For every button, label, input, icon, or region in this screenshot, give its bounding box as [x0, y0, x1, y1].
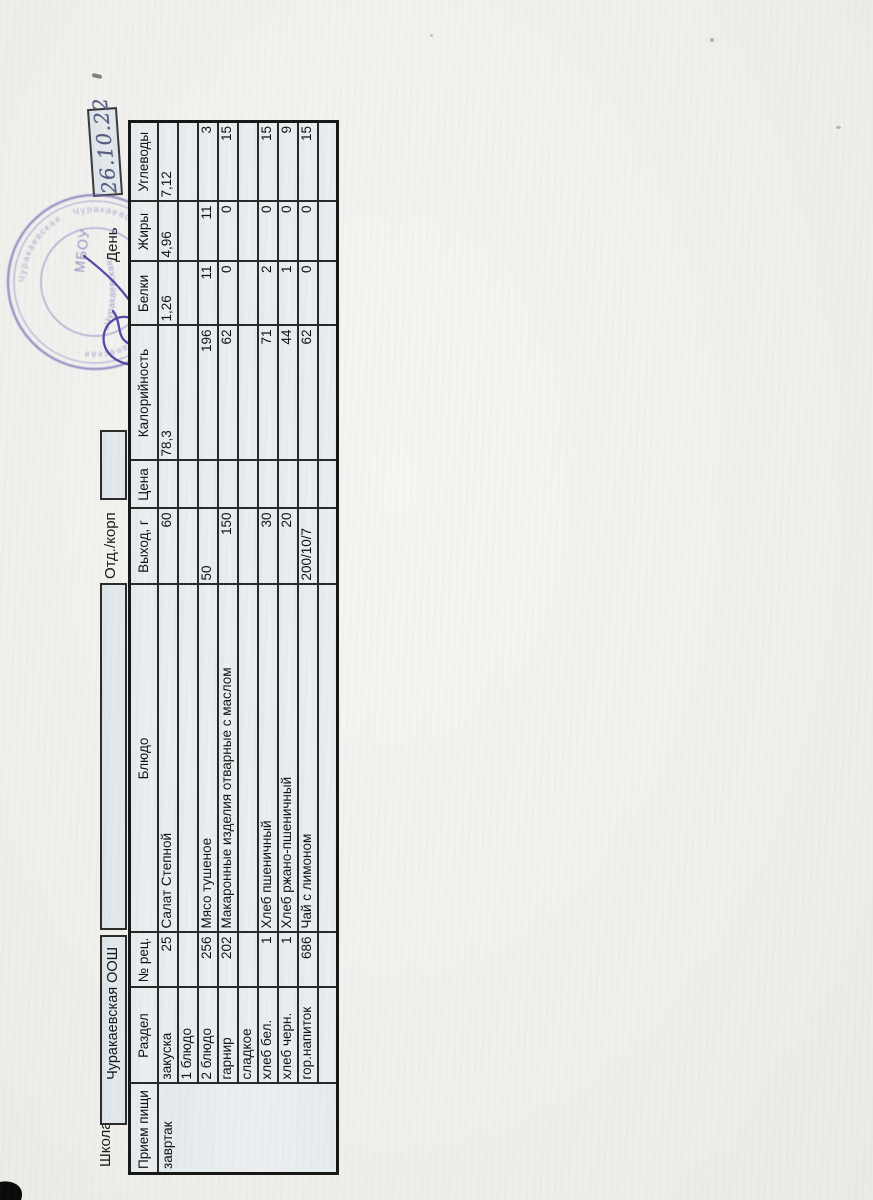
column-header: Белки — [130, 262, 158, 326]
table-cell: 1 блюдо — [178, 988, 198, 1084]
table-cell — [178, 326, 198, 461]
scanned-menu-document: Школа Чуракаевская ООШ Отд./корп День 26… — [0, 0, 873, 1200]
table-cell: 0 — [218, 262, 238, 326]
table-row: хлеб бел.1Хлеб пшеничный30712015 — [258, 122, 278, 1174]
table-cell: 71 — [258, 326, 278, 461]
table-row — [318, 122, 338, 1174]
column-header: Калорийность — [130, 326, 158, 461]
table-cell — [238, 122, 258, 202]
table-cell: 15 — [258, 122, 278, 202]
table-cell: 7,12 — [158, 122, 178, 202]
table-row: гарнир202Макаронные изделия отварные с м… — [218, 122, 238, 1174]
table-cell: 0 — [258, 202, 278, 262]
table-cell: Мясо тушеное — [198, 585, 218, 933]
table-cell: 11 — [198, 202, 218, 262]
table-cell: Макаронные изделия отварные с маслом — [218, 585, 238, 933]
table-cell: 200/10/7 — [298, 509, 318, 585]
table-row: завртакзакуска25Салат Степной6078,31,264… — [158, 122, 178, 1174]
table-cell: 15 — [298, 122, 318, 202]
table-cell: 2 блюдо — [198, 988, 218, 1084]
column-header: Цена — [130, 461, 158, 509]
table-cell: 1,26 — [158, 262, 178, 326]
scan-artifact — [836, 126, 841, 129]
table-cell — [238, 262, 258, 326]
table-row: хлеб черн.1Хлеб ржано-пшеничный2044109 — [278, 122, 298, 1174]
table-cell: гор.напиток — [298, 988, 318, 1084]
table-row: сладкое — [238, 122, 258, 1174]
table-cell — [158, 461, 178, 509]
table-cell: 78,3 — [158, 326, 178, 461]
table-cell: 9 — [278, 122, 298, 202]
table-cell: 60 — [158, 509, 178, 585]
table-cell: 0 — [298, 202, 318, 262]
table-cell — [238, 509, 258, 585]
scan-artifact — [710, 38, 714, 42]
column-header: № рец. — [130, 933, 158, 988]
table-cell: 0 — [278, 202, 298, 262]
date-box: 26.10.22 — [87, 107, 123, 197]
table-cell: 150 — [218, 509, 238, 585]
table-cell: Хлеб ржано-пшеничный — [278, 585, 298, 933]
table-cell — [178, 585, 198, 933]
document-sheet: Школа Чуракаевская ООШ Отд./корп День 26… — [0, 0, 873, 1200]
table-cell: 62 — [218, 326, 238, 461]
table-cell: закуска — [158, 988, 178, 1084]
table-row: 1 блюдо — [178, 122, 198, 1174]
column-header: Углеводы — [130, 122, 158, 202]
table-cell — [318, 988, 338, 1084]
table-cell: 20 — [278, 509, 298, 585]
table-cell — [238, 461, 258, 509]
table-cell: 15 — [218, 122, 238, 202]
table-cell — [318, 509, 338, 585]
table-cell — [178, 122, 198, 202]
table-cell: хлеб бел. — [258, 988, 278, 1084]
table-cell — [318, 326, 338, 461]
school-value-box: Чуракаевская ООШ — [100, 935, 127, 1125]
table-cell: 196 — [198, 326, 218, 461]
table-cell — [178, 933, 198, 988]
table-cell: 1 — [278, 933, 298, 988]
column-header: Выход, г — [130, 509, 158, 585]
table-cell: гарнир — [218, 988, 238, 1084]
table-cell: 4,96 — [158, 202, 178, 262]
column-header: Блюдо — [130, 585, 158, 933]
table-cell — [318, 933, 338, 988]
table-cell — [318, 262, 338, 326]
table-cell: 30 — [258, 509, 278, 585]
table-cell — [298, 461, 318, 509]
table-cell — [178, 461, 198, 509]
table-cell — [238, 326, 258, 461]
table-cell: 62 — [298, 326, 318, 461]
table-cell — [318, 202, 338, 262]
table-cell — [258, 461, 278, 509]
table-cell — [198, 461, 218, 509]
table-cell — [318, 585, 338, 933]
table-cell: 11 — [198, 262, 218, 326]
table-cell: 25 — [158, 933, 178, 988]
empty-field-box — [100, 583, 127, 930]
menu-table-body: завртакзакуска25Салат Степной6078,31,264… — [158, 122, 338, 1174]
table-cell: 0 — [218, 202, 238, 262]
school-label: Школа — [97, 1121, 114, 1167]
meal-cell: завртак — [158, 1084, 338, 1174]
table-cell — [278, 461, 298, 509]
table-cell: 1 — [258, 933, 278, 988]
corner-scan-blob — [0, 1158, 44, 1200]
dept-label: Отд./корп — [102, 512, 119, 579]
column-header: Прием пищи — [130, 1084, 158, 1174]
column-header: Жиры — [130, 202, 158, 262]
table-cell: сладкое — [238, 988, 258, 1084]
table-cell: 50 — [198, 509, 218, 585]
table-cell — [178, 262, 198, 326]
table-cell: Салат Степной — [158, 585, 178, 933]
menu-table: Прием пищиРаздел№ рец.БлюдоВыход, гЦенаК… — [128, 120, 339, 1175]
table-cell: 0 — [298, 262, 318, 326]
dept-value-box — [100, 430, 127, 500]
table-cell — [238, 585, 258, 933]
table-cell: Чай с лимоном — [298, 585, 318, 933]
school-value: Чуракаевская ООШ — [105, 947, 121, 1080]
handwritten-date: 26.10.22 — [88, 96, 122, 195]
scan-artifact — [430, 34, 433, 37]
table-cell — [318, 122, 338, 202]
table-cell: 3 — [198, 122, 218, 202]
table-cell — [178, 509, 198, 585]
table-cell: 686 — [298, 933, 318, 988]
header-row: Прием пищиРаздел№ рец.БлюдоВыход, гЦенаК… — [130, 122, 158, 1174]
table-cell: 2 — [258, 262, 278, 326]
table-cell — [178, 202, 198, 262]
column-header: Раздел — [130, 988, 158, 1084]
table-cell: 44 — [278, 326, 298, 461]
table-cell: 1 — [278, 262, 298, 326]
table-cell — [238, 202, 258, 262]
table-cell: Хлеб пшеничный — [258, 585, 278, 933]
table-cell — [318, 461, 338, 509]
table-cell: 202 — [218, 933, 238, 988]
table-row: 2 блюдо256Мясо тушеное5019611113 — [198, 122, 218, 1174]
table-cell — [218, 461, 238, 509]
table-cell — [238, 933, 258, 988]
table-row: гор.напиток686Чай с лимоном200/10/762001… — [298, 122, 318, 1174]
table-cell: хлеб черн. — [278, 988, 298, 1084]
table-cell: 256 — [198, 933, 218, 988]
